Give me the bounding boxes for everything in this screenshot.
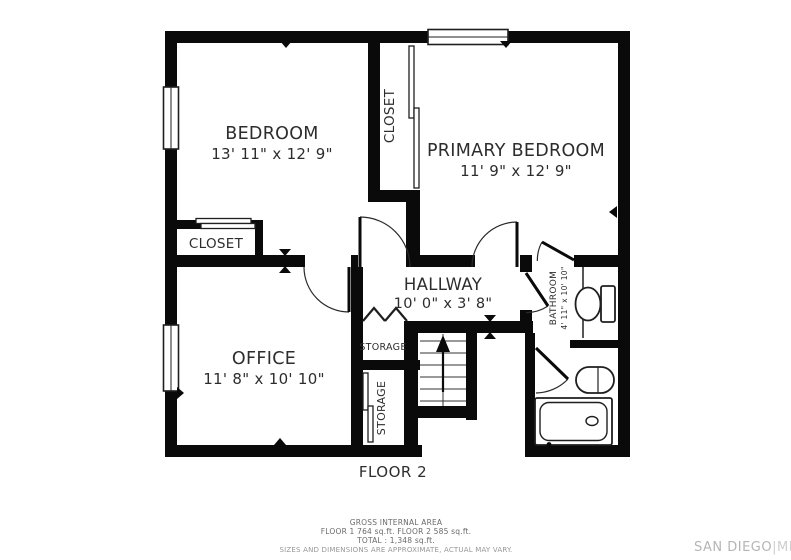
bathroom-inner-door xyxy=(536,348,568,393)
stairs xyxy=(420,334,466,406)
wall-under-stairs xyxy=(418,406,477,418)
office-label: OFFICE xyxy=(232,349,296,369)
closet-bypass-doors xyxy=(409,46,419,188)
south-closet-sliding-door xyxy=(196,219,255,229)
marker-office-left xyxy=(177,387,184,399)
wall-hallway-top-c xyxy=(418,255,475,267)
wall-south-closet-right xyxy=(255,220,263,267)
watermark-brand: SAN DIEGO xyxy=(694,540,772,555)
total-area-line: TOTAL : 1,348 sq.ft. xyxy=(196,536,596,545)
storage-lower-label: STORAGE xyxy=(375,381,388,435)
bathtub-fixture xyxy=(535,398,612,447)
floor-areas-line: FLOOR 1 764 sq.ft. FLOOR 2 585 sq.ft. xyxy=(196,527,596,536)
toilet-fixture xyxy=(576,286,616,322)
bedroom-dims: 13' 11" x 12' 9" xyxy=(211,145,333,163)
bathroom-door-hallway xyxy=(526,273,548,313)
floor-label: FLOOR 2 xyxy=(359,463,427,481)
marker-right-wall xyxy=(609,206,617,218)
wall-hallway-top-d xyxy=(574,255,618,267)
floorplan-drawing: BEDROOM 13' 11" x 12' 9" PRIMARY BEDROOM… xyxy=(0,0,791,560)
wall-stub-bedroom-door xyxy=(406,202,420,267)
marker-hall-bottom-b xyxy=(484,332,496,339)
marker-hall-bottom-a xyxy=(484,315,496,322)
window-primary-top xyxy=(428,30,508,45)
wall-bottom-right xyxy=(525,445,630,457)
closet-lower-label: CLOSET xyxy=(189,236,244,252)
window-bedroom-left xyxy=(164,87,179,149)
wall-right xyxy=(618,31,630,457)
bathroom-label: BATHROOM xyxy=(549,271,559,325)
wall-bathroom-divider xyxy=(570,340,618,348)
hallway-dims: 10' 0" x 3' 8" xyxy=(394,296,493,312)
area-summary: GROSS INTERNAL AREA FLOOR 1 764 sq.ft. F… xyxy=(196,518,596,555)
marker-top-bedroom xyxy=(280,41,292,48)
wall-bathroom-west xyxy=(525,333,535,457)
wall-closet-divider xyxy=(368,43,380,202)
primary-bedroom-door xyxy=(472,222,517,267)
primary-bedroom-label: PRIMARY BEDROOM xyxy=(427,141,605,161)
storage-sliding-door xyxy=(363,373,373,442)
marker-hall-top-a xyxy=(279,249,291,256)
windows xyxy=(164,30,509,392)
window-office-left xyxy=(164,325,179,391)
office-dims: 11' 8" x 10' 10" xyxy=(203,370,325,388)
sink-fixture xyxy=(576,367,614,393)
storage-upper-label: STORAGE xyxy=(359,342,406,353)
marker-bottom-office xyxy=(274,438,286,445)
wall-bottom-left xyxy=(165,445,422,457)
bedroom-label: BEDROOM xyxy=(225,124,318,144)
wall-hallway-top-a xyxy=(165,255,305,267)
disclaimer-text: SIZES AND DIMENSIONS ARE APPROXIMATE, AC… xyxy=(196,546,596,555)
bathroom-door-primary xyxy=(537,242,574,261)
bathroom-dims: 4' 11" x 10' 10" xyxy=(560,266,569,329)
wall-hall-east-upper xyxy=(520,255,532,272)
primary-bedroom-dims: 11' 9" x 12' 9" xyxy=(460,162,572,180)
watermark-suffix: |MLS xyxy=(772,540,791,555)
wall-stair-east xyxy=(466,321,477,420)
wall-hallway-top-b xyxy=(351,255,358,267)
stairs-up-arrow-icon xyxy=(436,335,450,392)
bedroom-door xyxy=(360,217,410,267)
office-door xyxy=(304,267,349,312)
wall-office-east xyxy=(351,267,363,445)
gross-area-title: GROSS INTERNAL AREA xyxy=(196,518,596,527)
closet-upper-label: CLOSET xyxy=(382,88,398,143)
floorplan-page: BEDROOM 13' 11" x 12' 9" PRIMARY BEDROOM… xyxy=(0,0,791,560)
wall-top xyxy=(165,31,630,43)
marker-hall-top-b xyxy=(279,266,291,273)
wall-closet-bottom xyxy=(368,190,420,202)
mls-watermark: SAN DIEGO|MLS xyxy=(694,540,791,555)
hallway-label: HALLWAY xyxy=(404,275,483,294)
